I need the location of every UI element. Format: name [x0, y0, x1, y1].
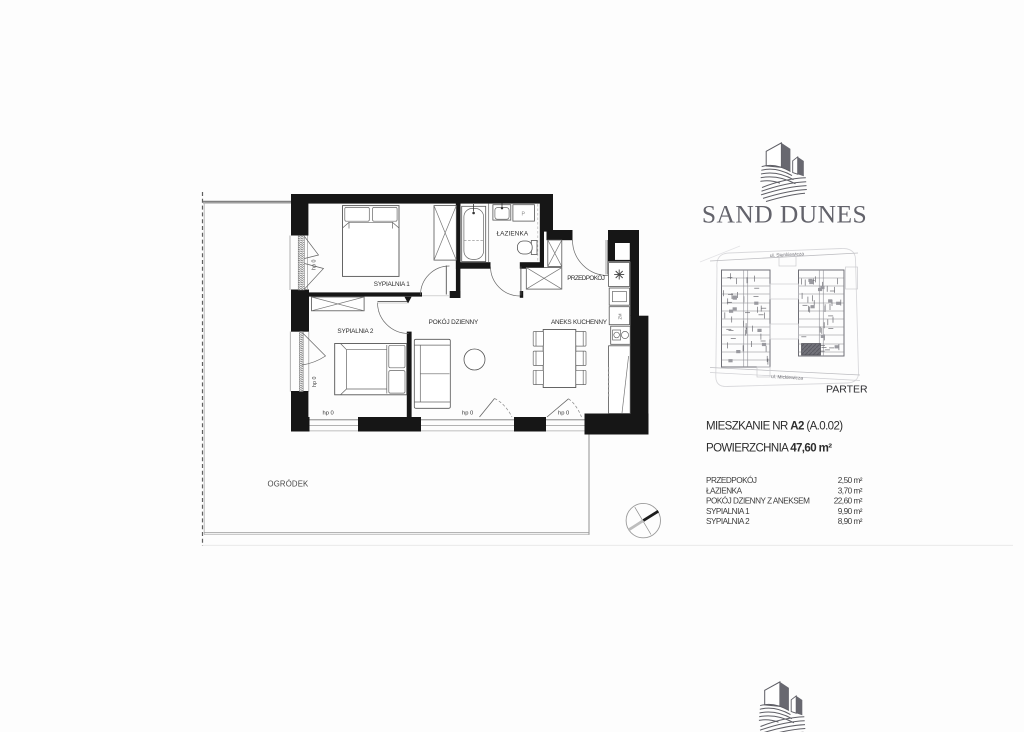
svg-text:hp 0: hp 0 [323, 411, 334, 417]
svg-text:PARTER: PARTER [826, 384, 868, 396]
svg-text:ANEKS KUCHENNY: ANEKS KUCHENNY [551, 319, 608, 326]
svg-text:MIESZKANIE NR A2 (A.0.02): MIESZKANIE NR A2 (A.0.02) [706, 420, 843, 432]
svg-text:ul. Sienkiewicza: ul. Sienkiewicza [770, 251, 805, 259]
svg-text:SYPIALNIA 1: SYPIALNIA 1 [374, 281, 410, 288]
svg-text:22,60 m²: 22,60 m² [834, 497, 863, 506]
svg-text:2,50 m²: 2,50 m² [838, 476, 863, 485]
svg-text:POWIERZCHNIA 47,60 m²: POWIERZCHNIA 47,60 m² [706, 443, 832, 455]
svg-text:9,90 m²: 9,90 m² [838, 507, 863, 516]
svg-text:SAND DUNES: SAND DUNES [702, 200, 867, 229]
svg-text:SYPIALNIA 2: SYPIALNIA 2 [706, 517, 750, 526]
svg-text:SYPIALNIA 1: SYPIALNIA 1 [706, 507, 750, 516]
svg-text:PRZEDPOKÓJ: PRZEDPOKÓJ [706, 475, 757, 485]
svg-text:hp 0: hp 0 [462, 411, 473, 417]
svg-text:ŁAZIENKA: ŁAZIENKA [497, 231, 529, 238]
svg-text:P: P [522, 212, 526, 218]
svg-text:ZM: ZM [618, 313, 623, 320]
svg-text:ŁAZIENKA: ŁAZIENKA [706, 486, 743, 495]
svg-text:POKÓJ DZIENNY Z ANEKSEM: POKÓJ DZIENNY Z ANEKSEM [706, 496, 810, 506]
svg-text:PRZEDPOKÓJ: PRZEDPOKÓJ [567, 273, 605, 282]
svg-text:SYPIALNIA 2: SYPIALNIA 2 [337, 328, 373, 335]
svg-text:POKÓJ DZIENNY: POKÓJ DZIENNY [429, 317, 479, 326]
svg-text:OGRÓDEK: OGRÓDEK [268, 480, 310, 489]
svg-text:3,70 m²: 3,70 m² [838, 486, 863, 495]
svg-text:hp 0: hp 0 [558, 411, 569, 417]
svg-text:8,90 m²: 8,90 m² [838, 517, 863, 526]
svg-text:hp 0: hp 0 [312, 377, 318, 388]
svg-text:ul. Mickiewicza: ul. Mickiewicza [771, 374, 804, 382]
svg-text:hp 0: hp 0 [312, 260, 318, 271]
